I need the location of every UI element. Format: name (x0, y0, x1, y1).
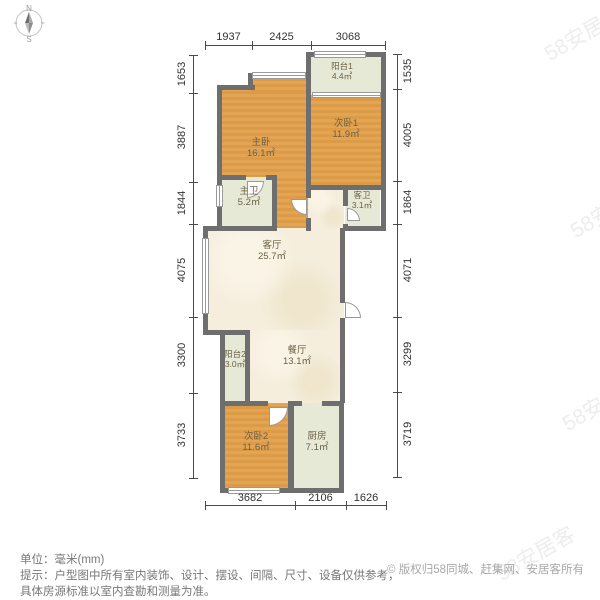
dimension-line-top (205, 45, 386, 46)
label-balcony2: 阳台23.0㎡ (211, 349, 259, 369)
wall-segment (322, 401, 344, 406)
window-master-top (252, 72, 306, 79)
dim-right-5: 3299 (401, 330, 415, 378)
wall-segment (217, 85, 222, 231)
label-bedroom1: 次卧111.9㎡ (316, 118, 376, 140)
unit-note: 单位：毫米(mm) (20, 551, 104, 567)
door-entrance (345, 302, 361, 318)
watermark-text: 58安居客 (556, 368, 600, 437)
dim-bottom-1: 3682 (205, 492, 295, 504)
wall-segment (306, 218, 311, 231)
dim-left-4: 4075 (175, 246, 189, 294)
dim-top-3: 3068 (311, 31, 385, 43)
dim-right-3: 1864 (401, 178, 415, 226)
dim-left-6: 3733 (175, 411, 189, 459)
label-guest-bath: 客卫3.1㎡ (338, 190, 386, 210)
window-balcony1-top (314, 51, 366, 58)
dimension-line-left (193, 55, 194, 478)
label-balcony1: 阳台14.4㎡ (318, 61, 366, 81)
room-bedroom1 (310, 95, 383, 187)
wall-segment (340, 228, 345, 303)
compass-south-label: S (26, 35, 31, 44)
dim-left-3: 1844 (175, 179, 189, 227)
watermark-text: 58安居客 (538, 0, 600, 68)
label-master-bedroom: 主卧16.1㎡ (231, 137, 291, 159)
compass-north-label: N (26, 4, 32, 13)
label-dining: 餐厅13.1㎡ (267, 345, 327, 367)
dim-right-1: 1535 (401, 47, 415, 95)
watermark-text: 58安居客 (490, 518, 580, 587)
dimension-line-right (397, 54, 398, 478)
watermark-text: 58安居客 (564, 175, 600, 244)
dim-bottom-3: 1626 (346, 492, 386, 504)
dim-left-5: 3300 (175, 331, 189, 379)
compass-icon: N S (8, 2, 50, 44)
label-kitchen: 厨房7.1㎡ (287, 431, 347, 453)
dim-top-2: 2425 (252, 31, 311, 43)
label-master-bath: 主卫5.2㎡ (219, 186, 279, 208)
dim-left-1: 1653 (175, 50, 189, 98)
wall-segment (203, 226, 277, 231)
wall-segment (340, 318, 345, 403)
room-master-bedroom (220, 88, 308, 177)
disclaimer-line2: 具体房源标准以室内查勘和测量为准。 (20, 583, 216, 599)
window-balcony1-bed1 (312, 92, 381, 98)
copyright-notice: © 版权归58同城、赶集网、安居客所有 (387, 561, 584, 577)
wall-segment (343, 224, 348, 231)
wall-segment (220, 330, 250, 335)
wall-segment (343, 226, 386, 231)
dim-top-1: 1937 (205, 31, 252, 43)
wall-segment (220, 401, 268, 406)
dim-right-2: 4005 (401, 111, 415, 159)
window-living-left (202, 238, 209, 314)
wall-segment (220, 175, 246, 180)
dim-bottom-2: 2106 (295, 492, 346, 504)
wall-segment (306, 52, 311, 198)
dim-left-2: 3887 (175, 113, 189, 161)
floorplan-canvas: 58安居客 58安居客 58安居客 58安居客 N S (0, 0, 600, 600)
dim-right-4: 4071 (401, 246, 415, 294)
label-bedroom2: 次卧211.6㎡ (226, 431, 286, 453)
disclaimer-line1: 提示：户型图中所有室内装饰、设计、摆设、间隔、尺寸、设备仅供参考， (20, 567, 400, 583)
label-living: 客厅25.7㎡ (242, 240, 302, 262)
dim-right-6: 3719 (401, 410, 415, 458)
